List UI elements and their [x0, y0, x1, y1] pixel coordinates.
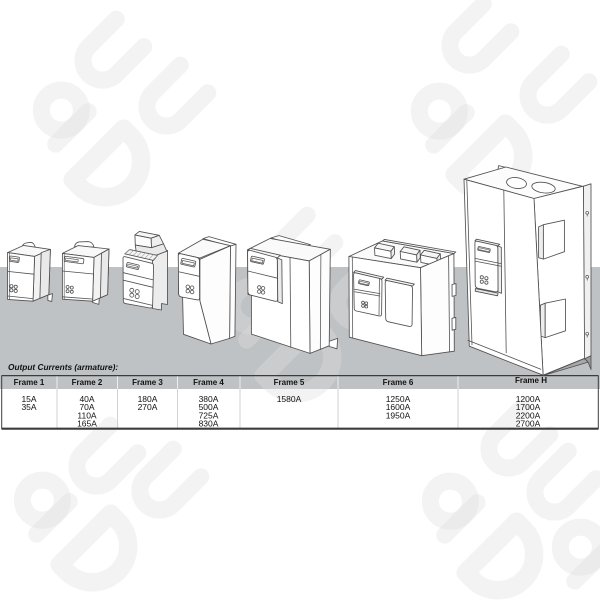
svg-text:Frame 6: Frame 6 — [383, 378, 414, 387]
svg-text:Frame 4: Frame 4 — [193, 378, 224, 387]
svg-text:270A: 270A — [138, 402, 158, 412]
svg-text:Frame H: Frame H — [515, 376, 547, 385]
svg-text:Output Currents (armature):: Output Currents (armature): — [8, 362, 118, 372]
svg-text:165A: 165A — [77, 419, 97, 429]
svg-text:35A: 35A — [21, 402, 36, 412]
svg-text:Frame 2: Frame 2 — [72, 378, 103, 387]
svg-text:1950A: 1950A — [386, 410, 411, 420]
svg-text:Frame 3: Frame 3 — [132, 378, 163, 387]
svg-text:2700A: 2700A — [516, 419, 541, 429]
svg-text:1580A: 1580A — [277, 394, 302, 404]
svg-text:830A: 830A — [199, 419, 219, 429]
svg-text:Frame 1: Frame 1 — [14, 378, 45, 387]
svg-text:Frame 5: Frame 5 — [274, 378, 305, 387]
